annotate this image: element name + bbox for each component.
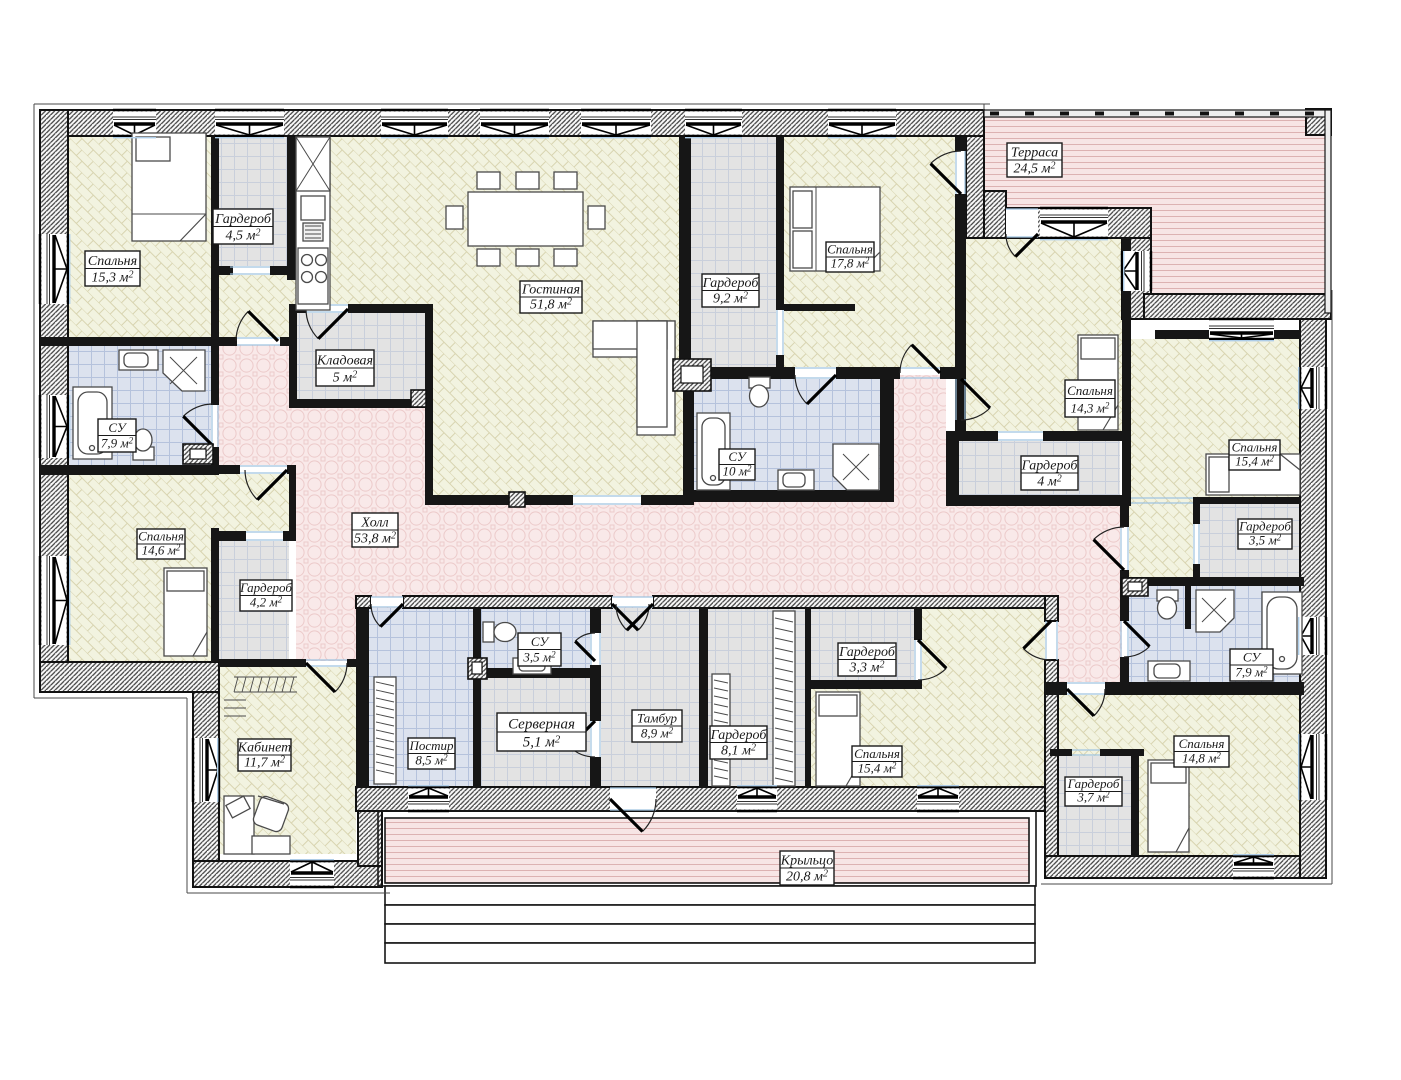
svg-text:14,6 м2: 14,6 м2 (142, 543, 181, 558)
svg-text:СУ: СУ (728, 449, 747, 464)
svg-text:Гардероб: Гардероб (214, 212, 272, 227)
svg-text:3,5 м2: 3,5 м2 (1248, 533, 1282, 548)
svg-text:20,8 м2: 20,8 м2 (786, 869, 828, 885)
svg-text:15,3 м2: 15,3 м2 (92, 270, 134, 286)
svg-text:15,4 м2: 15,4 м2 (858, 761, 897, 776)
svg-text:Кабинет: Кабинет (237, 741, 291, 756)
svg-text:Гардероб: Гардероб (838, 645, 896, 660)
svg-text:Гардероб: Гардероб (1238, 519, 1291, 534)
svg-text:3,5 м2: 3,5 м2 (522, 650, 556, 665)
svg-text:Кладовая: Кладовая (316, 354, 373, 369)
svg-text:Холл: Холл (360, 516, 388, 531)
svg-text:Спальня: Спальня (1067, 383, 1113, 398)
svg-text:14,8 м2: 14,8 м2 (1182, 751, 1221, 766)
svg-text:Гардероб: Гардероб (710, 728, 768, 743)
svg-text:53,8 м2: 53,8 м2 (354, 531, 396, 547)
svg-text:Гардероб: Гардероб (1021, 459, 1079, 474)
svg-text:11,7 м2: 11,7 м2 (244, 755, 285, 771)
svg-text:Постир: Постир (408, 738, 454, 753)
svg-text:Терраса: Терраса (1011, 146, 1058, 161)
svg-text:Гардероб: Гардероб (239, 580, 292, 595)
svg-text:Крыльцо: Крыльцо (780, 854, 833, 869)
svg-text:Спальня: Спальня (1232, 440, 1278, 455)
svg-text:СУ: СУ (531, 634, 550, 649)
svg-text:Гардероб: Гардероб (702, 276, 760, 291)
svg-text:17,8 м2: 17,8 м2 (831, 256, 870, 271)
svg-text:15,4 м2: 15,4 м2 (1235, 454, 1274, 469)
svg-text:51,8 м2: 51,8 м2 (530, 297, 572, 313)
svg-text:4,5 м2: 4,5 м2 (226, 228, 261, 244)
svg-text:Спальня: Спальня (1179, 736, 1225, 751)
svg-text:24,5 м2: 24,5 м2 (1014, 161, 1056, 177)
svg-text:СУ: СУ (108, 420, 127, 435)
svg-text:Спальня: Спальня (88, 254, 137, 269)
svg-text:8,1 м2: 8,1 м2 (721, 743, 756, 759)
svg-text:Серверная: Серверная (508, 717, 575, 733)
svg-text:Тамбур: Тамбур (637, 711, 678, 726)
svg-text:Гостиная: Гостиная (521, 283, 580, 298)
svg-text:3,7 м2: 3,7 м2 (1076, 790, 1110, 805)
svg-text:Спальня: Спальня (138, 529, 184, 544)
svg-text:14,3 м2: 14,3 м2 (1071, 401, 1110, 416)
svg-text:Спальня: Спальня (854, 746, 900, 761)
svg-text:3,3 м2: 3,3 м2 (849, 660, 885, 676)
svg-text:9,2 м2: 9,2 м2 (713, 291, 748, 307)
svg-text:Спальня: Спальня (827, 242, 873, 257)
svg-text:СУ: СУ (1243, 650, 1262, 665)
